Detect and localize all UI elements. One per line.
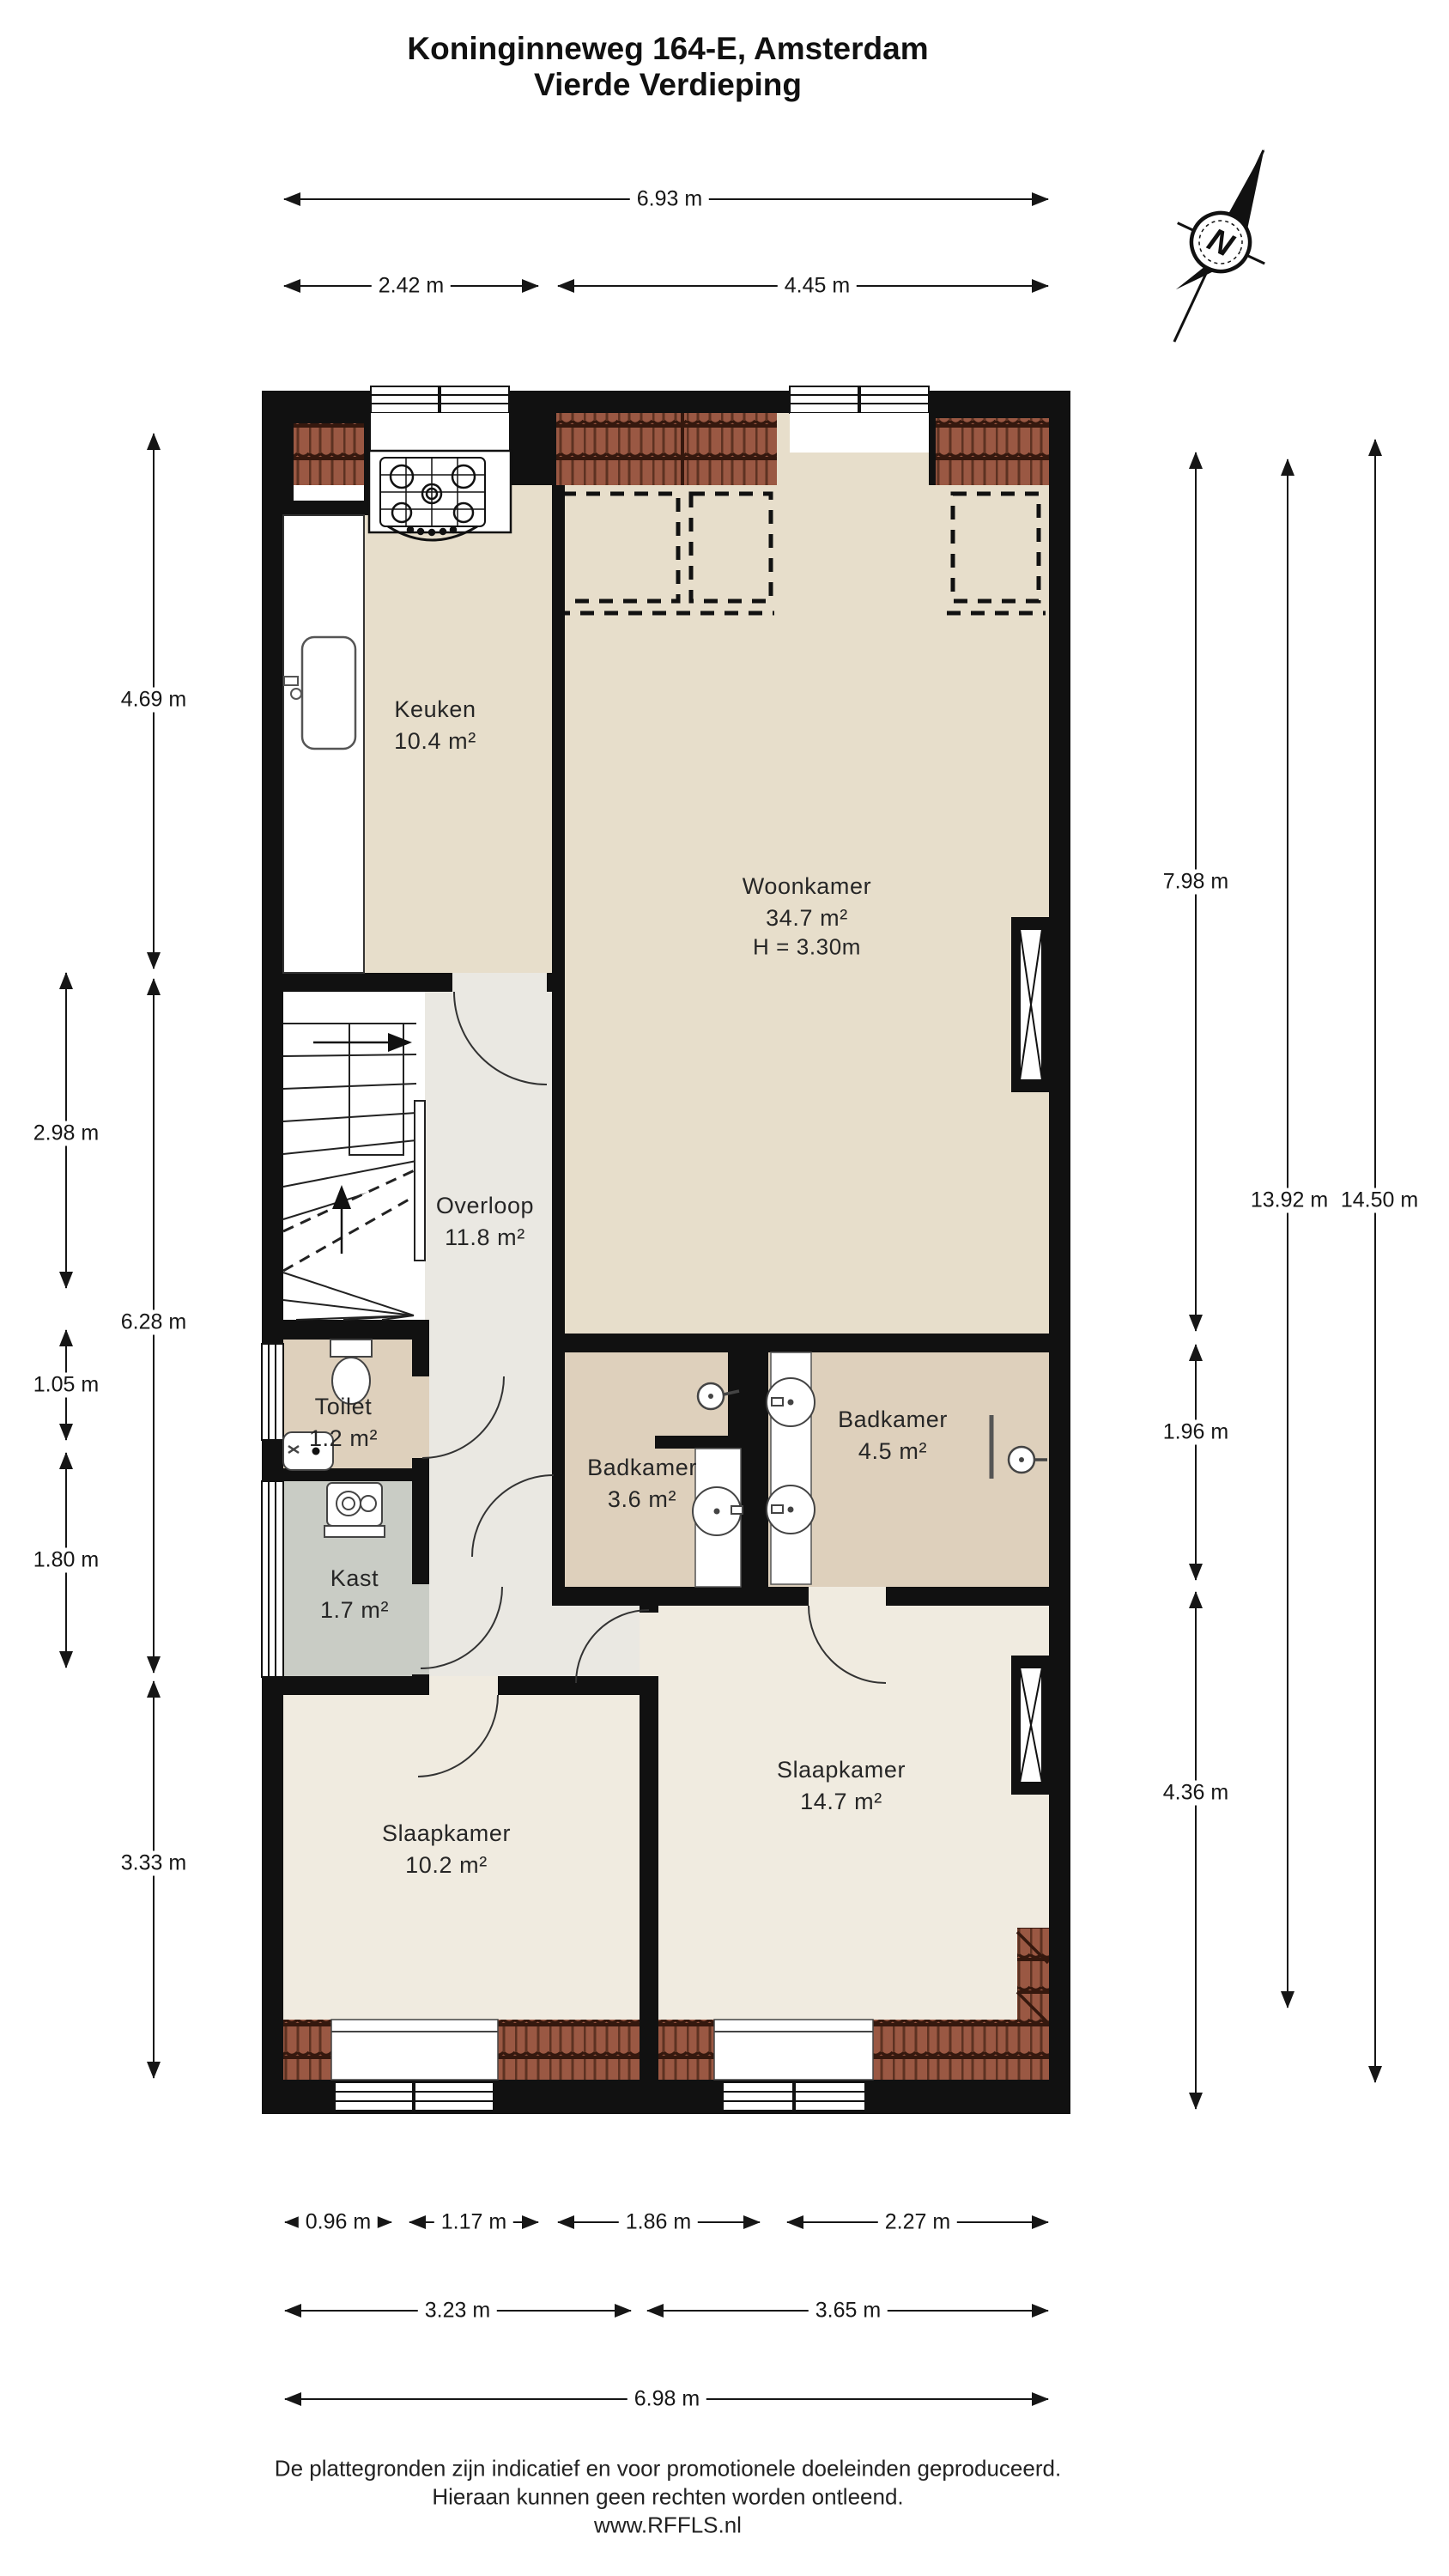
page-title-line1: Koninginneweg 164-E, Amsterdam	[407, 31, 928, 67]
wall-bedrooms-top-b	[498, 1676, 658, 1695]
window-top-woonkamer	[790, 386, 929, 453]
wall-left	[262, 391, 283, 2114]
page-title-line2: Vierde Verdieping	[534, 67, 802, 103]
room-area: 1.7 m²	[320, 1595, 389, 1626]
window-bottom-slaapkamer-klein	[335, 2082, 494, 2111]
basin-tap-icon	[772, 1398, 783, 1406]
room-label-overloop: Overloop 11.8 m²	[436, 1190, 534, 1255]
wall-bedrooms-top-a	[283, 1676, 418, 1695]
dim-label-bottom-seg1: 0.96 m	[299, 2210, 378, 2235]
dim-label-right-outer-total: 14.50 m	[1334, 1188, 1425, 1213]
wall-badkamers-mid	[741, 1334, 768, 1606]
disclaimer-line1: De plattegronden zijn indicatief en voor…	[275, 2456, 1061, 2482]
dim-label-left-slaapkamer: 3.33 m	[114, 1851, 193, 1876]
dim-label-bottom-total: 6.98 m	[627, 2387, 706, 2412]
stair-handrail	[415, 1101, 425, 1261]
roof-tiles-topright	[936, 418, 1049, 485]
wall-keuken-overloop-b	[547, 973, 565, 992]
faucet-icon	[284, 677, 298, 685]
kitchen-counter	[283, 515, 364, 973]
website-label: www.RFFLS.nl	[594, 2512, 742, 2539]
dim-label-bottom-left-total: 3.23 m	[418, 2299, 497, 2324]
room-name: Badkamer	[838, 1404, 948, 1436]
dim-label-left-mid: 6.28 m	[114, 1310, 193, 1335]
floor-plan-graphic: N	[0, 0, 1449, 2576]
wall-kast-right-a	[412, 1481, 429, 1584]
dim-label-top-left: 2.42 m	[372, 274, 451, 299]
window-left-kast	[262, 1481, 283, 1677]
wall-overloop-woonkamer	[552, 992, 565, 1587]
flue-shaft-slaapkamer	[1011, 1656, 1049, 1795]
room-area: 4.5 m²	[838, 1436, 948, 1467]
floor-slaapkamer-groot	[640, 1587, 1049, 2080]
room-label-badkamer-groot: Badkamer 4.5 m²	[838, 1404, 948, 1468]
knee-recess-right	[714, 2020, 873, 2080]
floor-overloop	[416, 973, 565, 1695]
room-area: 14.7 m²	[777, 1786, 906, 1818]
wall-bedroom2-stub	[640, 1587, 658, 1613]
wall-badkamers-top	[565, 1334, 1049, 1352]
dim-label-left-keuken: 4.69 m	[114, 688, 193, 713]
dim-label-right-slaapkamer: 4.36 m	[1156, 1781, 1235, 1806]
roof-tiles-botleft	[283, 2020, 331, 2080]
wall-badkamers-bottom-b	[886, 1587, 1049, 1606]
dim-label-bottom-right-total: 3.65 m	[809, 2299, 888, 2324]
dim-label-bottom-seg2: 1.17 m	[434, 2210, 513, 2235]
basin-tap-icon	[772, 1505, 783, 1513]
wall-right	[1049, 391, 1070, 2114]
dim-label-right-inner-total: 13.92 m	[1244, 1188, 1335, 1213]
staircase	[283, 992, 425, 1320]
roof-tiles-botmid-a	[498, 2020, 640, 2080]
room-label-slaapkamer-groot: Slaapkamer 14.7 m²	[777, 1754, 906, 1819]
basin-tap-icon	[731, 1506, 743, 1514]
window-top-keuken	[371, 386, 509, 451]
dormer-recess-topleft	[294, 485, 364, 501]
dim-label-bottom-seg3: 1.86 m	[619, 2210, 698, 2235]
wall-badkamers-bottom-a	[552, 1587, 809, 1606]
wall-keuken-overloop-a	[283, 973, 452, 992]
room-name: Overloop	[436, 1190, 534, 1222]
wall-shower-stub-v	[728, 1352, 741, 1438]
wall-pillar-top	[509, 391, 556, 485]
room-area: 3.6 m²	[587, 1484, 697, 1516]
dim-label-top-total: 6.93 m	[630, 187, 709, 212]
compass-rose: N	[1131, 129, 1308, 362]
kast-fixtures	[324, 1483, 385, 1537]
roof-tiles-botright	[873, 2020, 1049, 2080]
wall-dormer-topleft	[283, 501, 364, 515]
room-name: Slaapkamer	[382, 1818, 511, 1850]
window-left-toilet	[262, 1344, 283, 1440]
knee-recess-left	[331, 2020, 498, 2080]
window-recess	[790, 413, 929, 453]
room-label-kast: Kast 1.7 m²	[320, 1563, 389, 1627]
dim-label-left-kast: 1.80 m	[27, 1548, 106, 1573]
room-area: 10.2 m²	[382, 1850, 511, 1881]
roof-tiles-corner	[1017, 1928, 1049, 2020]
roof-tiles-topleft	[294, 423, 364, 485]
roof-tiles-topmid	[556, 413, 777, 485]
disclaimer-line2: Hieraan kunnen geen rechten worden ontle…	[432, 2484, 903, 2511]
flue-shaft-woonkamer	[1011, 917, 1049, 1092]
ceiling-height-label: H = 3.30m	[753, 934, 861, 961]
dim-label-left-toilet: 1.05 m	[27, 1373, 106, 1398]
room-label-woonkamer: Woonkamer 34.7 m²	[743, 871, 871, 935]
wall-bedroom2-corner	[640, 1676, 658, 1695]
faucet-knob-icon	[291, 689, 301, 699]
room-label-badkamer-klein: Badkamer 3.6 m²	[587, 1452, 697, 1516]
roof-tiles-botmid-b	[658, 2020, 714, 2080]
stove-icon	[369, 451, 511, 540]
window-recess	[371, 413, 509, 451]
dim-label-right-badkamer: 1.96 m	[1156, 1420, 1235, 1445]
boiler-base	[324, 1526, 385, 1537]
room-name: Kast	[320, 1563, 389, 1595]
room-area: 34.7 m²	[743, 902, 871, 934]
room-name: Keuken	[394, 694, 476, 726]
wall-shower-stub-h	[655, 1436, 744, 1449]
room-label-toilet: Toilet 1.2 m²	[309, 1391, 378, 1455]
room-area: 10.4 m²	[394, 726, 476, 757]
room-name: Slaapkamer	[777, 1754, 906, 1786]
dim-label-right-woonkamer: 7.98 m	[1156, 870, 1235, 895]
room-name: Toilet	[309, 1391, 378, 1423]
room-area: 11.8 m²	[436, 1222, 534, 1254]
toilet-tank-icon	[330, 1340, 372, 1357]
room-area: 1.2 m²	[309, 1423, 378, 1455]
wall-toilet-top	[283, 1320, 429, 1340]
dim-label-top-right: 4.45 m	[778, 274, 857, 299]
wall-toilet-right-a	[412, 1320, 429, 1376]
room-label-slaapkamer-klein: Slaapkamer 10.2 m²	[382, 1818, 511, 1882]
kitchen-sink-icon	[302, 637, 355, 749]
room-name: Badkamer	[587, 1452, 697, 1484]
wall-bedrooms-divider	[640, 1695, 658, 2080]
room-label-keuken: Keuken 10.4 m²	[394, 694, 476, 758]
floorplan-page: N Koninginneweg 164-E, Amsterdam Vierde …	[0, 0, 1449, 2576]
room-name: Woonkamer	[743, 871, 871, 902]
dim-label-bottom-seg4: 2.27 m	[878, 2210, 957, 2235]
window-bottom-slaapkamer-groot	[723, 2082, 865, 2111]
dim-label-left-trap: 2.98 m	[27, 1121, 106, 1146]
